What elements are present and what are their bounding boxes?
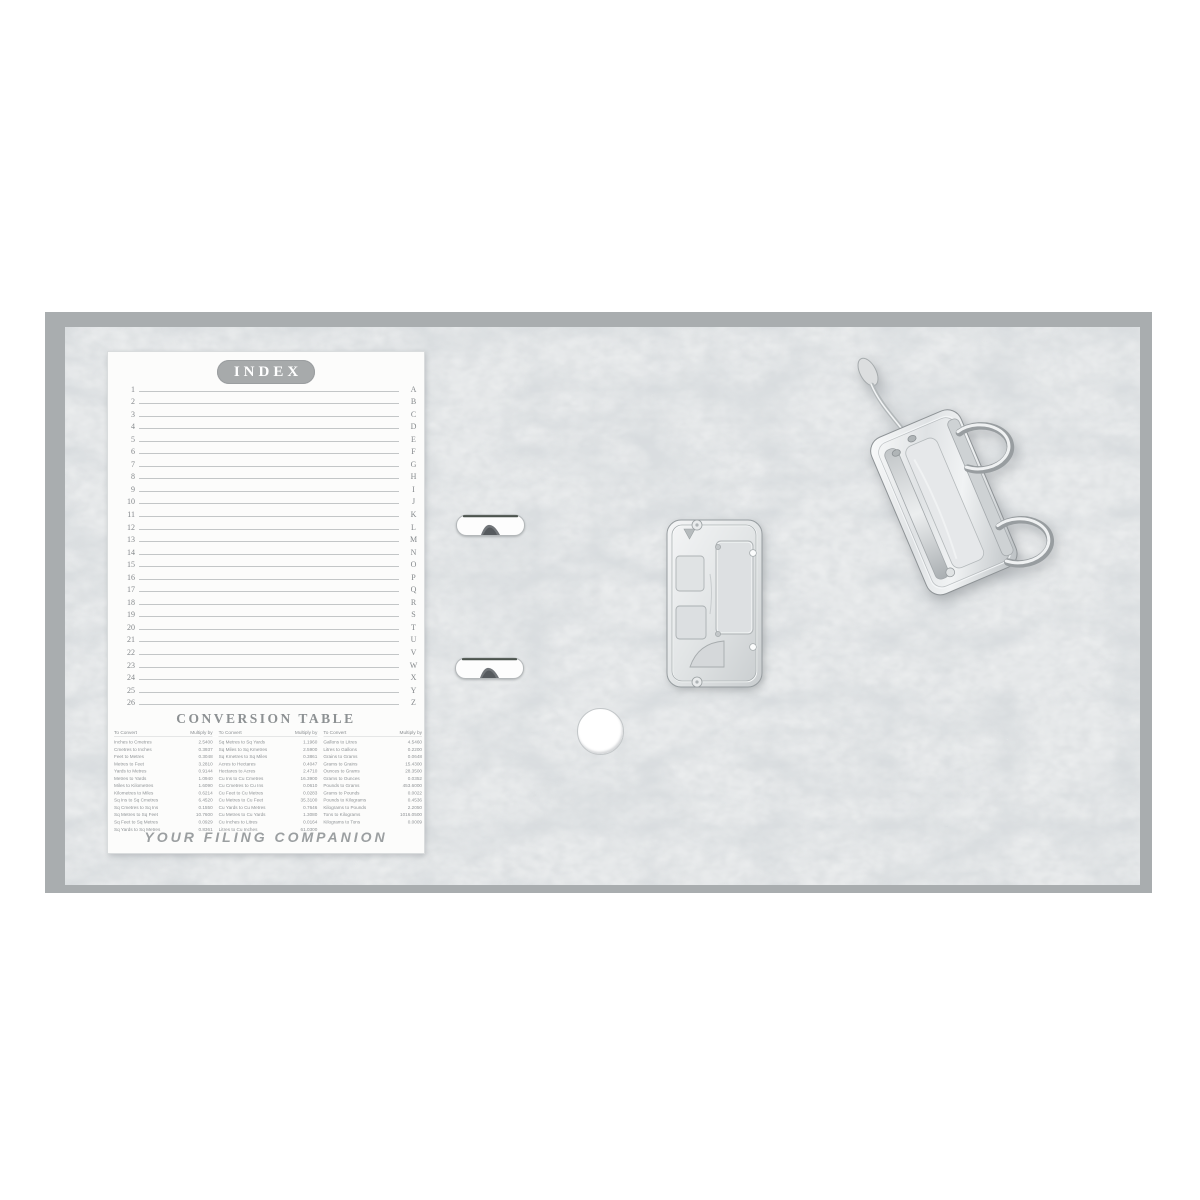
conversion-value: 0.0929 (198, 819, 212, 826)
index-ruled-line (139, 565, 399, 567)
index-ruled-line (139, 452, 399, 454)
index-tab-letter: V (406, 648, 421, 657)
index-row: 14N (108, 544, 424, 557)
index-ruled-line (139, 628, 399, 630)
index-tab-letter: K (406, 510, 421, 519)
index-row-number: 13 (118, 535, 135, 544)
index-ruled-line (139, 553, 399, 555)
index-row-number: 23 (118, 661, 135, 670)
index-ruled-line (139, 590, 399, 592)
conversion-row: Inches to Cmetres2.5400 (114, 739, 213, 746)
index-row-number: 1 (118, 385, 135, 394)
base-plate-icon (666, 519, 763, 688)
conversion-row: Sq Cmetres to Sq Ins0.1550 (114, 804, 213, 811)
conversion-label: Grains to Grams (323, 753, 357, 760)
index-ruled-line (139, 640, 399, 642)
index-ruled-line (139, 427, 399, 429)
index-row: 19S (108, 607, 424, 620)
lever-arch-mechanism (848, 342, 1064, 614)
index-tab-letter: S (406, 610, 421, 619)
index-row: 25Y (108, 682, 424, 695)
index-ruled-line (139, 515, 399, 517)
conversion-label: Gallons to Litres (323, 739, 357, 746)
index-tab-letter: E (406, 435, 421, 444)
conversion-value: 3.2810 (198, 760, 212, 767)
conversion-label: Ounces to Grams (323, 768, 359, 775)
conversion-label: Acres to Hectares (219, 760, 256, 767)
conversion-value: 0.3937 (198, 746, 212, 753)
conversion-column-headers: To ConvertMultiply by (323, 730, 422, 737)
conversion-value: 0.0283 (303, 789, 317, 796)
index-tab-letter: U (406, 635, 421, 644)
index-row-number: 24 (118, 673, 135, 682)
index-tab-letter: Q (406, 585, 421, 594)
index-row-number: 6 (118, 447, 135, 456)
index-row-number: 11 (118, 510, 135, 519)
conversion-value: 0.0648 (408, 753, 422, 760)
conversion-column-group: To ConvertMultiply bySq Metres to Sq Yar… (219, 730, 318, 833)
conversion-row: Cu Inches to Litres0.0164 (219, 819, 318, 826)
conversion-label: Litres to Gallons (323, 746, 357, 753)
index-tab-letter: X (406, 673, 421, 682)
index-tab-letter: C (406, 410, 421, 419)
conversion-value: 1.6090 (198, 782, 212, 789)
index-ruled-line (139, 666, 399, 668)
conversion-value: 1.1960 (303, 739, 317, 746)
index-row-number: 15 (118, 560, 135, 569)
index-tab-letter: D (406, 422, 421, 431)
conversion-label: Kilometres to Miles (114, 789, 153, 796)
conversion-row: Grams to Grains15.4300 (323, 760, 422, 767)
conversion-row: Pounds to Kilograms0.4536 (323, 797, 422, 804)
index-row: 10J (108, 494, 424, 507)
conversion-value: 0.0610 (303, 782, 317, 789)
index-row-number: 2 (118, 397, 135, 406)
conversion-value: 2.5400 (198, 739, 212, 746)
conversion-label: Cu Metres to Cu Feet (219, 797, 263, 804)
conversion-value: 35.3100 (301, 797, 318, 804)
index-tab-letter: H (406, 472, 421, 481)
index-row: 3C (108, 406, 424, 419)
conversion-label: Sq Ins to Sq Cmetres (114, 797, 158, 804)
conversion-column-group: To ConvertMultiply byGallons to Litres4.… (323, 730, 422, 833)
compressor-clip-slot-bottom (455, 656, 524, 679)
conversion-label: Cu Yards to Cu Metres (219, 804, 266, 811)
conversion-value: 16.3900 (301, 775, 318, 782)
conversion-label: Miles to Kilometres (114, 782, 153, 789)
conversion-row: Cu Feet to Cu Metres0.0283 (219, 789, 318, 796)
index-row: 17Q (108, 582, 424, 595)
index-ruled-line (139, 402, 399, 404)
index-tab-letter: L (406, 523, 421, 532)
conversion-row: Sq Kmetres to Sq Miles0.3861 (219, 753, 318, 760)
index-tab-letter: N (406, 548, 421, 557)
index-row: 5E (108, 431, 424, 444)
conversion-label: Sq Feet to Sq Metres (114, 819, 158, 826)
conversion-value: 0.0009 (408, 819, 422, 826)
conversion-row: Metres to Feet3.2810 (114, 760, 213, 767)
index-ruled-line (139, 440, 399, 442)
conversion-row: Cu Metres to Cu Feet35.3100 (219, 797, 318, 804)
conversion-row: Hectares to Acres2.4710 (219, 768, 318, 775)
conversion-label: Cu Ins to Cu Cmetres (219, 775, 264, 782)
conversion-label: Hectares to Acres (219, 768, 256, 775)
conversion-value: 0.4536 (408, 797, 422, 804)
conversion-label: Pounds to Kilograms (323, 797, 366, 804)
lever-handle-tip (854, 355, 882, 389)
header-multiply-by: Multiply by (400, 730, 422, 736)
conversion-value: 15.4300 (405, 760, 422, 767)
index-row-number: 17 (118, 585, 135, 594)
index-row: 22V (108, 644, 424, 657)
conversion-value: 4.5460 (408, 739, 422, 746)
conversion-row: Metres to Yards1.0940 (114, 775, 213, 782)
conversion-row: Grams to Ounces0.0352 (323, 775, 422, 782)
index-ruled-line (139, 703, 399, 705)
conversion-value: 0.1550 (198, 804, 212, 811)
conversion-table-title: CONVERSION TABLE (108, 711, 424, 727)
finger-hole (577, 708, 624, 755)
conversion-row: Ounces to Grams28.3500 (323, 768, 422, 775)
conversion-row: Kilometres to Miles0.6214 (114, 789, 213, 796)
conversion-label: Inches to Cmetres (114, 739, 152, 746)
index-ruled-line (139, 603, 399, 605)
conversion-value: 0.0352 (408, 775, 422, 782)
index-tab-letter: R (406, 598, 421, 607)
conversion-column-group: To ConvertMultiply byInches to Cmetres2.… (114, 730, 213, 833)
compressor-clip-slot-top (456, 513, 525, 536)
index-ruled-line (139, 490, 399, 492)
conversion-value: 1.3080 (303, 811, 317, 818)
conversion-row: Miles to Kilometres1.6090 (114, 782, 213, 789)
conversion-label: Metres to Yards (114, 775, 146, 782)
index-row: 16P (108, 569, 424, 582)
conversion-row: Cu Metres to Cu Yards1.3080 (219, 811, 318, 818)
index-row: 18R (108, 594, 424, 607)
conversion-value: 0.0022 (408, 789, 422, 796)
index-tab-letter: G (406, 460, 421, 469)
index-ruled-line (139, 653, 399, 655)
conversion-label: Kilograms to Pounds (323, 804, 366, 811)
index-ruled-line (139, 415, 399, 417)
index-tab-letter: P (406, 573, 421, 582)
conversion-value: 453.6000 (403, 782, 422, 789)
conversion-value: 28.3500 (405, 768, 422, 775)
conversion-value: 0.3861 (303, 753, 317, 760)
conversion-value: 6.4520 (198, 797, 212, 804)
conversion-value: 0.4047 (303, 760, 317, 767)
conversion-label: Tons to Kilograms (323, 811, 360, 818)
conversion-row: Tons to Kilograms1016.0500 (323, 811, 422, 818)
conversion-label: Kilograms to Tons (323, 819, 360, 826)
index-row-number: 21 (118, 635, 135, 644)
conversion-label: Cmetres to Inches (114, 746, 152, 753)
index-row-number: 9 (118, 485, 135, 494)
conversion-row: Sq Feet to Sq Metres0.0929 (114, 819, 213, 826)
conversion-value: 2.4710 (303, 768, 317, 775)
index-row-number: 20 (118, 623, 135, 632)
index-row-number: 19 (118, 610, 135, 619)
index-tab-letter: T (406, 623, 421, 632)
conversion-row: Cu Cmetres to Cu Ins0.0610 (219, 782, 318, 789)
index-ruled-line (139, 477, 399, 479)
conversion-label: Cu Cmetres to Cu Ins (219, 782, 264, 789)
conversion-value: 0.9144 (198, 768, 212, 775)
index-ruled-line (139, 691, 399, 693)
conversion-label: Cu Metres to Cu Yards (219, 811, 266, 818)
lever-arch-base-plate (666, 519, 763, 688)
conversion-label: Grams to Ounces (323, 775, 359, 782)
index-ruled-line (139, 528, 399, 530)
index-tab-letter: W (406, 661, 421, 670)
index-title: INDEX (230, 364, 302, 381)
conversion-table-groups: To ConvertMultiply byInches to Cmetres2.… (114, 730, 422, 833)
conversion-row: Acres to Hectares0.4047 (219, 760, 318, 767)
conversion-label: Pounds to Grams (323, 782, 359, 789)
index-row: 6F (108, 444, 424, 457)
conversion-label: Cu Feet to Cu Metres (219, 789, 263, 796)
conversion-label: Feet to Metres (114, 753, 144, 760)
index-ruled-line (139, 578, 399, 580)
index-ruled-line (139, 678, 399, 680)
header-to-convert: To Convert (219, 730, 242, 736)
conversion-column-headers: To ConvertMultiply by (219, 730, 318, 737)
conversion-label: Metres to Feet (114, 760, 144, 767)
index-ruled-line (139, 465, 399, 467)
conversion-row: Grains to Grams0.0648 (323, 753, 422, 760)
conversion-label: Grams to Grains (323, 760, 357, 767)
conversion-label: Sq Metres to Sq Feet (114, 811, 158, 818)
index-ruled-line (139, 390, 399, 392)
conversion-value: 1016.0500 (400, 811, 422, 818)
conversion-value: 0.6214 (198, 789, 212, 796)
index-row-number: 7 (118, 460, 135, 469)
index-row: 7G (108, 456, 424, 469)
conversion-label: Grams to Pounds (323, 789, 359, 796)
conversion-value: 1.0940 (198, 775, 212, 782)
index-row: 12L (108, 519, 424, 532)
index-tab-letter: J (406, 497, 421, 506)
index-tab-letter: O (406, 560, 421, 569)
conversion-row: Grams to Pounds0.0022 (323, 789, 422, 796)
conversion-row: Gallons to Litres4.5460 (323, 739, 422, 746)
index-row: 21U (108, 632, 424, 645)
conversion-row: Kilograms to Tons0.0009 (323, 819, 422, 826)
conversion-row: Litres to Gallons0.2200 (323, 746, 422, 753)
clip-icon (455, 656, 524, 679)
conversion-label: Sq Metres to Sq Yards (219, 739, 265, 746)
index-row: 4D (108, 419, 424, 432)
index-row: 24X (108, 670, 424, 683)
index-row-number: 22 (118, 648, 135, 657)
filing-companion-slogan: YOUR FILING COMPANION (108, 829, 424, 845)
index-tab-letter: Y (406, 686, 421, 695)
index-row-number: 8 (118, 472, 135, 481)
conversion-row: Sq Miles to Sq Kmetres2.5900 (219, 746, 318, 753)
index-row-number: 5 (118, 435, 135, 444)
conversion-value: 0.2200 (408, 746, 422, 753)
index-row-number: 12 (118, 523, 135, 532)
index-row: 8H (108, 469, 424, 482)
conversion-value: 0.7646 (303, 804, 317, 811)
conversion-label: Cu Inches to Litres (219, 819, 258, 826)
index-tab-letter: F (406, 447, 421, 456)
index-row: 13M (108, 532, 424, 545)
conversion-row: Cu Yards to Cu Metres0.7646 (219, 804, 318, 811)
index-tab-letter: I (406, 485, 421, 494)
index-row-number: 10 (118, 497, 135, 506)
index-row-number: 3 (118, 410, 135, 419)
index-rows: 1A2B3C4D5E6F7G8H9I10J11K12L13M14N15O16P1… (108, 381, 424, 707)
conversion-value: 2.5900 (303, 746, 317, 753)
clip-icon (456, 513, 525, 536)
index-tab-letter: A (406, 385, 421, 394)
conversion-row: Yards to Metres0.9144 (114, 768, 213, 775)
index-tab-letter: Z (406, 698, 421, 707)
index-card: INDEX 1A2B3C4D5E6F7G8H9I10J11K12L13M14N1… (107, 351, 425, 854)
index-tab-letter: M (406, 535, 421, 544)
index-row: 9I (108, 481, 424, 494)
index-ruled-line (139, 502, 399, 504)
conversion-label: Sq Miles to Sq Kmetres (219, 746, 268, 753)
conversion-value: 2.2050 (408, 804, 422, 811)
header-multiply-by: Multiply by (190, 730, 212, 736)
index-row: 1A (108, 381, 424, 394)
conversion-value: 0.0164 (303, 819, 317, 826)
index-row: 26Z (108, 695, 424, 708)
index-row: 15O (108, 557, 424, 570)
conversion-row: Feet to Metres0.3048 (114, 753, 213, 760)
conversion-row: Cmetres to Inches0.3937 (114, 746, 213, 753)
header-to-convert: To Convert (114, 730, 137, 736)
index-row-number: 14 (118, 548, 135, 557)
conversion-row: Sq Metres to Sq Yards1.1960 (219, 739, 318, 746)
product-photo-lever-arch-file-interior: INDEX 1A2B3C4D5E6F7G8H9I10J11K12L13M14N1… (0, 0, 1200, 1200)
conversion-row: Pounds to Grams453.6000 (323, 782, 422, 789)
conversion-value: 10.7600 (196, 811, 213, 818)
index-row: 2B (108, 394, 424, 407)
conversion-label: Sq Kmetres to Sq Miles (219, 753, 268, 760)
conversion-column-headers: To ConvertMultiply by (114, 730, 213, 737)
conversion-row: Sq Ins to Sq Cmetres6.4520 (114, 797, 213, 804)
index-row-number: 26 (118, 698, 135, 707)
index-row-number: 4 (118, 422, 135, 431)
index-row: 20T (108, 619, 424, 632)
index-row-number: 25 (118, 686, 135, 695)
index-row: 11K (108, 506, 424, 519)
header-to-convert: To Convert (323, 730, 346, 736)
conversion-value: 0.3048 (198, 753, 212, 760)
conversion-row: Kilograms to Pounds2.2050 (323, 804, 422, 811)
index-ruled-line (139, 540, 399, 542)
conversion-row: Sq Metres to Sq Feet10.7600 (114, 811, 213, 818)
index-ruled-line (139, 615, 399, 617)
conversion-label: Yards to Metres (114, 768, 146, 775)
conversion-table: To ConvertMultiply byInches to Cmetres2.… (114, 730, 422, 833)
header-multiply-by: Multiply by (295, 730, 317, 736)
index-tab-letter: B (406, 397, 421, 406)
mechanism-icon (848, 342, 1064, 614)
index-row: 23W (108, 657, 424, 670)
conversion-row: Cu Ins to Cu Cmetres16.3900 (219, 775, 318, 782)
conversion-label: Sq Cmetres to Sq Ins (114, 804, 158, 811)
index-row-number: 18 (118, 598, 135, 607)
index-row-number: 16 (118, 573, 135, 582)
